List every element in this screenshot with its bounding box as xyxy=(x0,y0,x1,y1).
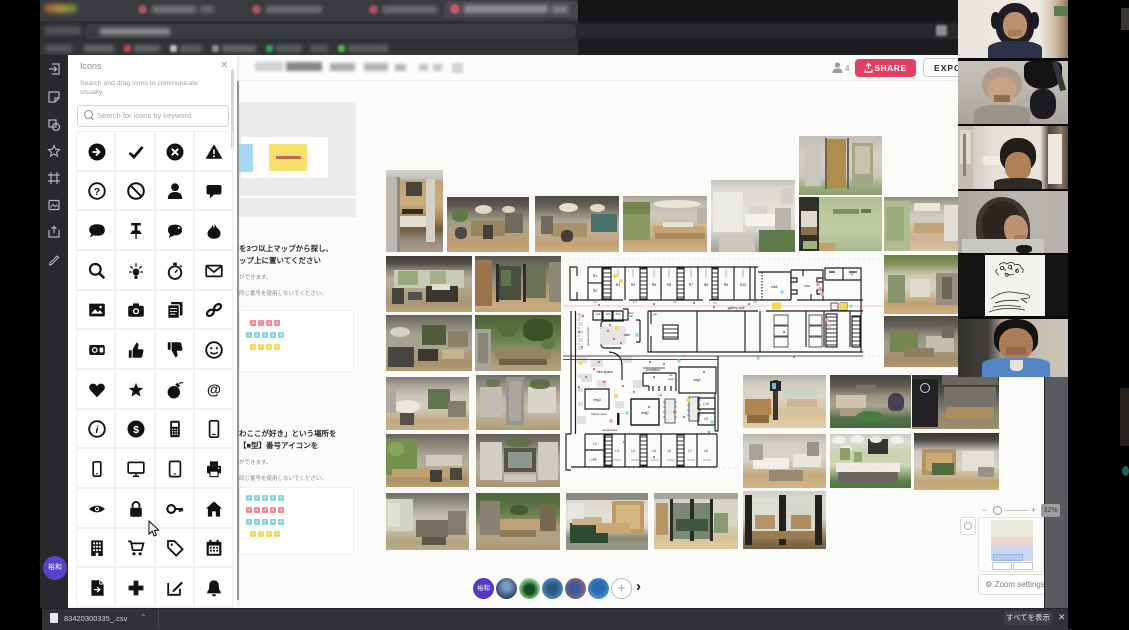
svg-text:L10: L10 xyxy=(703,402,709,406)
svg-text:L1: L1 xyxy=(593,457,597,461)
svg-text:L5: L5 xyxy=(652,449,656,453)
svg-text:bnk: bnk xyxy=(606,312,611,316)
svg-text:?: ? xyxy=(93,186,99,198)
svg-text:@: @ xyxy=(207,382,221,398)
svg-text:mtg3: mtg3 xyxy=(593,398,601,402)
svg-text:windcreator: windcreator xyxy=(602,428,618,432)
svg-text:R4: R4 xyxy=(631,283,636,287)
svg-text:green corridor: green corridor xyxy=(586,327,590,346)
svg-text:R5: R5 xyxy=(652,283,657,287)
svg-text:L6: L6 xyxy=(667,449,671,453)
svg-text:bnk: bnk xyxy=(596,312,601,316)
svg-text:$: $ xyxy=(133,424,139,436)
svg-text:reception: reception xyxy=(646,368,660,372)
svg-text:qa: qa xyxy=(653,312,657,316)
svg-text:bar: bar xyxy=(629,314,633,318)
svg-text:library area: library area xyxy=(591,412,606,416)
svg-text:midi: midi xyxy=(771,285,778,289)
svg-text:L4: L4 xyxy=(631,449,635,453)
svg-text:flex space: flex space xyxy=(597,370,613,374)
svg-text:i: i xyxy=(95,425,99,437)
svg-text:pH: pH xyxy=(658,393,662,397)
svg-text:L8: L8 xyxy=(704,449,708,453)
svg-text:cafe: cafe xyxy=(624,333,631,337)
svg-text:mtg1: mtg1 xyxy=(693,378,701,382)
svg-text:mtg2: mtg2 xyxy=(641,411,649,415)
svg-text:bnk: bnk xyxy=(616,312,621,316)
svg-text:R1: R1 xyxy=(593,274,598,278)
svg-text:gallery wall: gallery wall xyxy=(728,306,745,310)
svg-text:R6: R6 xyxy=(667,283,672,287)
svg-text:sport: sport xyxy=(668,377,674,381)
svg-text:R8: R8 xyxy=(704,283,709,287)
svg-text:L9: L9 xyxy=(704,417,708,421)
svg-text:L3: L3 xyxy=(615,449,619,453)
svg-text:R2: R2 xyxy=(593,289,598,293)
svg-text:R9: R9 xyxy=(724,283,729,287)
svg-text:L2: L2 xyxy=(593,442,597,446)
svg-text:do: do xyxy=(670,373,673,377)
svg-text:R3: R3 xyxy=(616,283,621,287)
svg-text:R10: R10 xyxy=(740,283,747,287)
svg-text:L7: L7 xyxy=(688,449,692,453)
svg-text:R7: R7 xyxy=(689,283,694,287)
svg-text:cnc: cnc xyxy=(804,284,810,288)
